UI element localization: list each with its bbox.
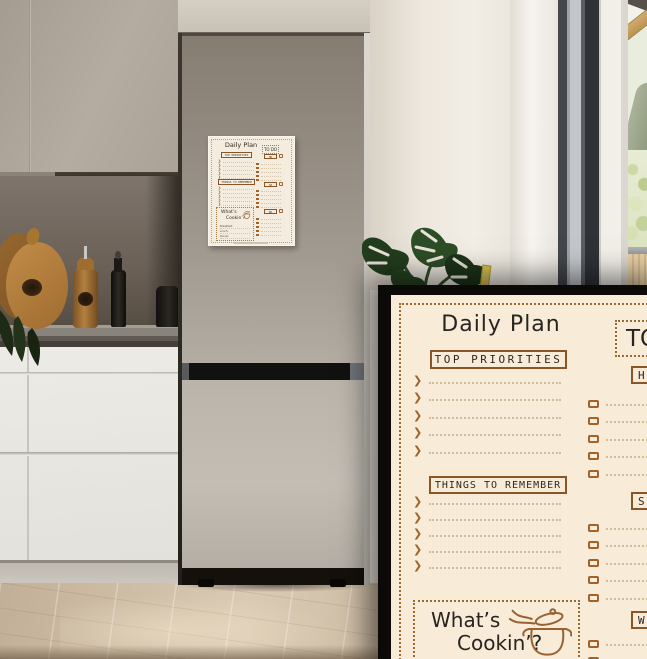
list-item: ❯ <box>413 403 561 421</box>
list-item <box>588 567 647 585</box>
dark-bottle <box>111 270 126 327</box>
arrow-bullet-icon: ❯ <box>413 427 422 438</box>
counter-plant-leaves <box>0 298 48 370</box>
write-line <box>223 205 254 206</box>
list-item: ❯ <box>413 555 561 571</box>
list-item <box>588 408 647 426</box>
write-line <box>261 235 281 236</box>
write-line <box>606 439 647 441</box>
drawer-gap <box>0 372 178 375</box>
checkbox <box>588 640 599 648</box>
list-item <box>588 549 647 567</box>
lower-cabinets <box>0 347 178 583</box>
checkbox <box>256 234 259 237</box>
write-line <box>606 580 647 582</box>
priorities-list: ❯ ❯ ❯ ❯ ❯ <box>413 368 561 456</box>
mini-whats-label: What’s <box>221 210 237 215</box>
wooden-beam <box>628 7 647 41</box>
list-item: ❯ <box>218 202 254 206</box>
mini-dinner-label: Dinner: <box>220 235 250 239</box>
list-item: ❯ <box>413 368 561 386</box>
arrow-bullet-icon: ❯ <box>413 560 422 571</box>
write-line <box>606 644 647 646</box>
list-item <box>256 177 281 181</box>
whats-label: What’s <box>431 608 500 632</box>
cabinet-kick <box>0 560 178 583</box>
list-item: ❯ <box>413 421 561 439</box>
mini-category-label-2: SE <box>264 182 277 187</box>
mini-remember-list: ❯ ❯ ❯ ❯ ❯ <box>218 186 254 206</box>
checkbox <box>588 559 599 567</box>
list-item <box>588 460 647 478</box>
arrow-bullet-icon: ❯ <box>413 392 422 403</box>
deck-boards <box>628 254 647 285</box>
checkbox <box>588 452 599 460</box>
write-line <box>606 598 647 600</box>
write-line <box>429 452 561 454</box>
oil-bottle-spout <box>84 246 87 259</box>
checkbox <box>588 417 599 425</box>
fridge-foot <box>198 579 214 587</box>
dark-jar <box>156 286 179 327</box>
list-item <box>588 390 647 408</box>
write-line <box>261 180 281 181</box>
monstera-plant <box>362 203 512 295</box>
mini-checklist <box>256 161 281 181</box>
mini-things-to-remember-label: THINGS TO REMEMBER <box>218 179 255 185</box>
window-view <box>628 0 647 285</box>
write-line <box>606 545 647 547</box>
mini-todo-label: TO DO <box>262 145 279 154</box>
list-item: ❯ <box>413 507 561 523</box>
list-item: ❯ <box>413 539 561 555</box>
list-item <box>588 532 647 550</box>
category-icon <box>279 182 283 186</box>
write-line <box>429 382 561 384</box>
category-icon <box>279 209 283 213</box>
write-line <box>261 207 281 208</box>
fridge-planner-sheet: Daily Plan TOP PRIORITIES ❯ ❯ ❯ ❯ ❯ THIN… <box>208 136 295 246</box>
roof-eave <box>628 0 647 11</box>
list-item <box>256 232 281 236</box>
todo-checklist <box>588 630 647 659</box>
cutting-board-hole <box>22 279 42 296</box>
write-line <box>429 503 561 505</box>
mini-breakfast-label: Breakfast: <box>220 225 250 229</box>
checkbox <box>588 576 599 584</box>
checkbox <box>588 524 599 532</box>
checkbox <box>588 470 599 478</box>
kitchen-photo: Daily Plan TOP PRIORITIES ❯ ❯ ❯ ❯ ❯ THIN… <box>0 0 647 659</box>
write-line <box>429 519 561 521</box>
planner-closeup-frame: Daily Plan TOP PRIORITIES ❯ ❯ ❯ ❯ ❯ THIN… <box>378 285 647 659</box>
cabinet-above-fridge <box>178 0 370 34</box>
mini-checklist <box>256 216 281 236</box>
planner-page: Daily Plan TOP PRIORITIES ❯ ❯ ❯ ❯ ❯ THIN… <box>391 295 647 659</box>
window-jamb <box>510 0 558 285</box>
dark-bottle-neck <box>114 258 122 272</box>
write-line <box>429 535 561 537</box>
write-line <box>429 567 561 569</box>
list-item: ❯ <box>413 523 561 539</box>
checkbox <box>256 179 259 182</box>
write-line <box>606 404 647 406</box>
checkbox <box>588 435 599 443</box>
list-item: ❯ <box>413 491 561 507</box>
arrow-bullet-icon: ❯ <box>413 410 422 421</box>
category-label-3: WO <box>631 611 647 629</box>
railing <box>628 247 647 254</box>
write-line <box>606 421 647 423</box>
oil-bottle-opening <box>78 292 93 306</box>
checkbox <box>588 594 599 602</box>
fridge-handle <box>182 363 364 380</box>
write-line <box>606 456 647 458</box>
drawer-seam <box>27 347 29 583</box>
arrow-bullet-icon: ❯ <box>413 445 422 456</box>
list-item: ❯ <box>413 438 561 456</box>
fridge-right-edge <box>364 33 370 585</box>
write-line <box>429 417 561 419</box>
window-frame <box>558 0 599 285</box>
arrow-bullet-icon: ❯ <box>413 496 422 507</box>
mini-top-priorities-label: TOP PRIORITIES <box>221 152 252 158</box>
mini-footer-text-illegible <box>234 242 268 244</box>
todo-label: TO <box>615 320 647 357</box>
arrow-bullet-icon: ❯ <box>413 375 422 386</box>
mini-planner-title: Daily Plan <box>218 141 264 149</box>
write-line <box>429 434 561 436</box>
refrigerator <box>178 33 370 585</box>
arrow-bullet-icon: ❯ <box>218 203 221 207</box>
list-item <box>588 584 647 602</box>
mini-checklist <box>256 188 281 208</box>
cooking-pot-icon <box>508 606 572 659</box>
list-item: ❯ <box>413 386 561 404</box>
write-line <box>606 528 647 530</box>
arrow-bullet-icon: ❯ <box>413 544 422 555</box>
todo-checklist <box>588 390 647 478</box>
category-label-2: SE <box>631 492 647 510</box>
list-item <box>588 425 647 443</box>
mini-whats-cookin-box: What’s Cookin’? Breakfast: Lunch: Dinner… <box>216 207 254 241</box>
fridge-freezer-door <box>182 380 364 568</box>
cooking-pot-icon <box>240 210 251 220</box>
mini-category-label-1: HO <box>264 154 277 159</box>
mini-priorities-list: ❯ ❯ ❯ ❯ ❯ <box>218 159 254 179</box>
list-item <box>588 514 647 532</box>
write-line <box>429 551 561 553</box>
mini-lunch-label: Lunch: <box>220 230 250 234</box>
todo-checklist <box>588 514 647 602</box>
upper-cabinets <box>0 0 178 173</box>
arrow-bullet-icon: ❯ <box>413 528 422 539</box>
remember-list: ❯ ❯ ❯ ❯ ❯ <box>413 491 561 571</box>
garden-foliage <box>628 150 647 248</box>
write-line <box>429 399 561 401</box>
window-sash <box>599 0 628 285</box>
arrow-bullet-icon: ❯ <box>413 512 422 523</box>
category-label-1: HO <box>631 366 647 384</box>
list-item <box>588 630 647 648</box>
list-item <box>588 443 647 461</box>
drawer-gap <box>0 452 178 456</box>
checkbox <box>256 206 259 209</box>
checkbox <box>588 541 599 549</box>
write-line <box>606 563 647 565</box>
category-icon <box>279 154 283 158</box>
top-priorities-label: TOP PRIORITIES <box>430 350 567 369</box>
mini-category-label-3: WO <box>264 209 277 214</box>
list-item <box>256 204 281 208</box>
fridge-foot <box>330 579 346 587</box>
write-line <box>606 474 647 476</box>
checkbox <box>588 400 599 408</box>
whats-cookin-box: What’s Cookin’? <box>413 600 580 659</box>
list-item <box>588 648 647 659</box>
planner-title: Daily Plan <box>436 312 566 337</box>
cabinet-seam <box>29 0 31 173</box>
dark-bottle-knob <box>115 251 121 259</box>
